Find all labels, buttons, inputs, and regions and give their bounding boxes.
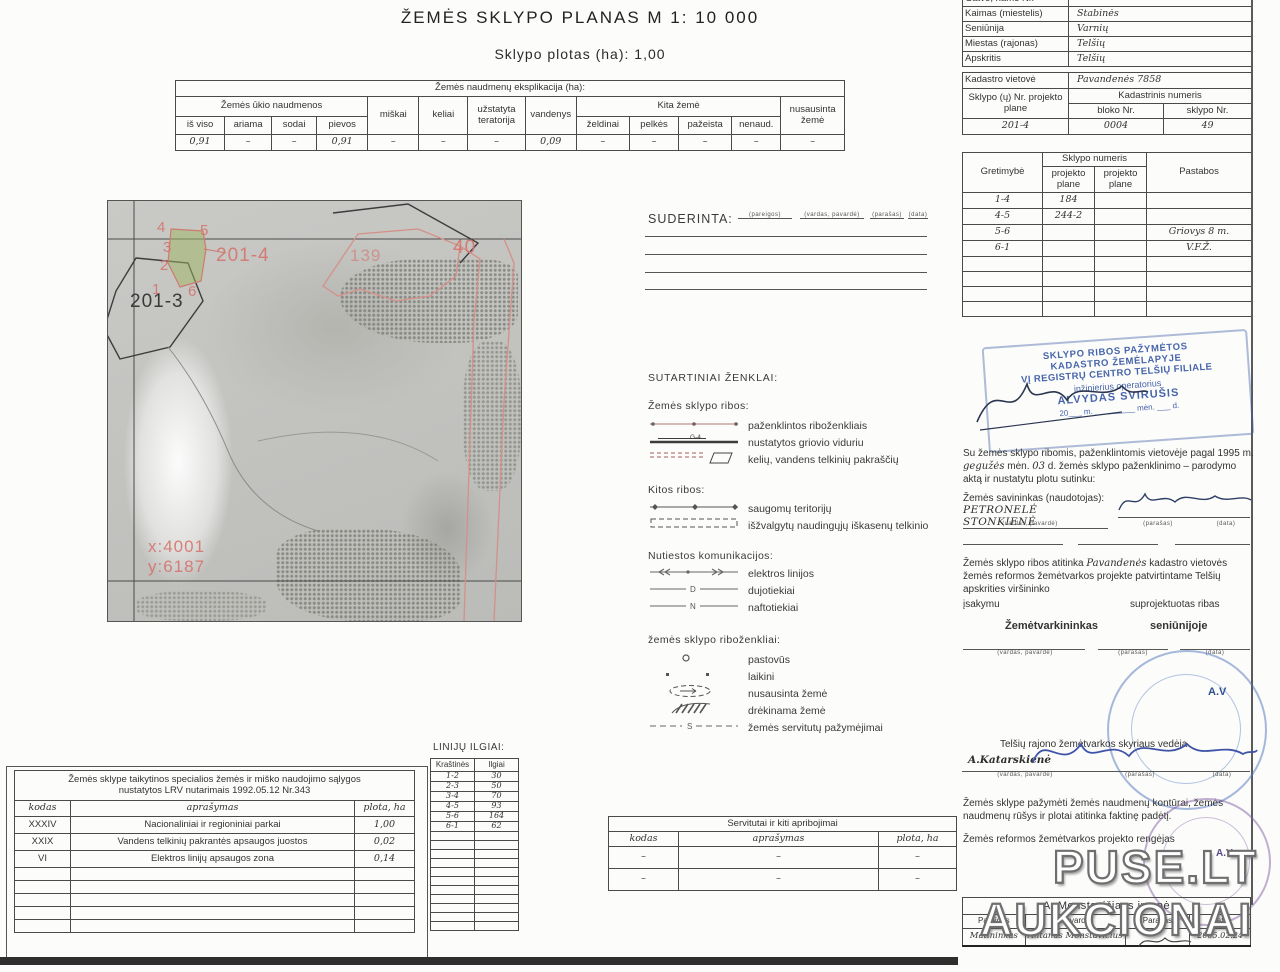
scan-artifact-band <box>0 957 958 965</box>
location-table: Gatvė, namo Nr. Kaimas (miestelis)Stabin… <box>962 0 1252 67</box>
group-kita: Kita žemė <box>576 97 781 117</box>
watermark-aukcionai: AUKCIONAI <box>980 894 1253 946</box>
map-label-40: 40 <box>453 237 476 259</box>
page-title: ŽEMĖS SKLYPO PLANAS M 1: 10 000 <box>300 8 860 28</box>
explication-table: Žemės naudmenų eksplikacija (ha): Žemės … <box>175 80 845 151</box>
symbol-permanent-marker <box>648 651 748 669</box>
consent-paragraph: Su žemės sklypo ribomis, paženklintomis … <box>963 447 1255 487</box>
explication-values-row: 0,91– –0,91 –– –0,09 –– –– – <box>176 135 845 151</box>
svg-text:S: S <box>687 722 692 731</box>
symbol-servitude: S <box>648 719 748 737</box>
legend: SUTARTINIAI ŽENKLAI: Žemės sklypo ribos:… <box>648 372 953 736</box>
group-agri: Žemės ūkio naudmenos <box>176 97 368 117</box>
project-match-paragraph: Žemės sklypo ribos atitinka Pavandenės k… <box>963 557 1255 597</box>
map-label-139: 139 <box>350 246 381 266</box>
stamp-signature <box>972 360 1152 440</box>
vertex-5: 5 <box>200 222 209 239</box>
lengths-table: KraštinėsIlgiai 1-230 2-350 3-470 4-593 … <box>430 758 519 931</box>
svg-text:N: N <box>690 602 696 611</box>
scanned-land-plan-document: ŽEMĖS SKLYPO PLANAS M 1: 10 000 Sklypo p… <box>0 0 1280 972</box>
explication-title: Žemės naudmenų eksplikacija (ha): <box>176 81 845 97</box>
servitudes-title: Servitutai ir kiti apribojimai <box>609 817 957 832</box>
map-coord-x: x:4001 <box>148 537 205 557</box>
vedeja-signature <box>1025 730 1260 775</box>
legend-title: SUTARTINIAI ŽENKLAI: <box>648 372 953 384</box>
symbol-road-water-edge <box>648 448 748 471</box>
suderinta-label: SUDERINTA: <box>648 212 733 226</box>
symbol-oil-pipeline: N <box>648 599 748 617</box>
adjacency-table: GretimybėSklypo numerisPastabos projekto… <box>962 152 1252 317</box>
plot-area-subtitle: Sklypo plotas (ha): 1,00 <box>300 46 860 62</box>
vertex-4: 4 <box>157 219 166 236</box>
vertex-3: 3 <box>163 239 172 256</box>
symbol-protected-territory <box>648 500 748 518</box>
lengths-title: LINIJŲ ILGIAI: <box>433 742 504 753</box>
servitudes-table: Servitutai ir kiti apribojimai kodasapra… <box>608 816 957 891</box>
symbol-mineral-deposit <box>648 516 748 535</box>
vertex-2: 2 <box>160 257 169 274</box>
role-zemetvarkininkas: Žemėtvarkininkas <box>1005 620 1098 632</box>
owner-signature <box>1115 482 1255 516</box>
special-conditions-table: Žemės sklype taikytinos specialios žemės… <box>14 770 415 933</box>
cadastre-table: Kadastro vietovėPavandenės 7858 Sklypo (… <box>962 72 1252 135</box>
aerial-photo-map: 4 5 3 2 1 6 201-4 201-3 139 40 x:4001 y:… <box>107 200 522 622</box>
symbol-gas-pipeline: D <box>648 582 748 600</box>
av-mark-1: A.V <box>1208 686 1226 698</box>
role-seniunijoje: seniūnijoje <box>1150 620 1207 632</box>
svg-text:D: D <box>690 585 696 594</box>
map-label-plot-left: 201-3 <box>130 291 184 313</box>
watermark-puse-lt: PUSE.LT <box>1053 840 1258 894</box>
symbol-power-lines <box>648 565 748 583</box>
map-coord-y: y:6187 <box>148 557 205 577</box>
vertex-6: 6 <box>188 283 197 300</box>
map-label-plot-main: 201-4 <box>216 245 270 267</box>
svg-text:G-4: G-4 <box>690 434 701 441</box>
